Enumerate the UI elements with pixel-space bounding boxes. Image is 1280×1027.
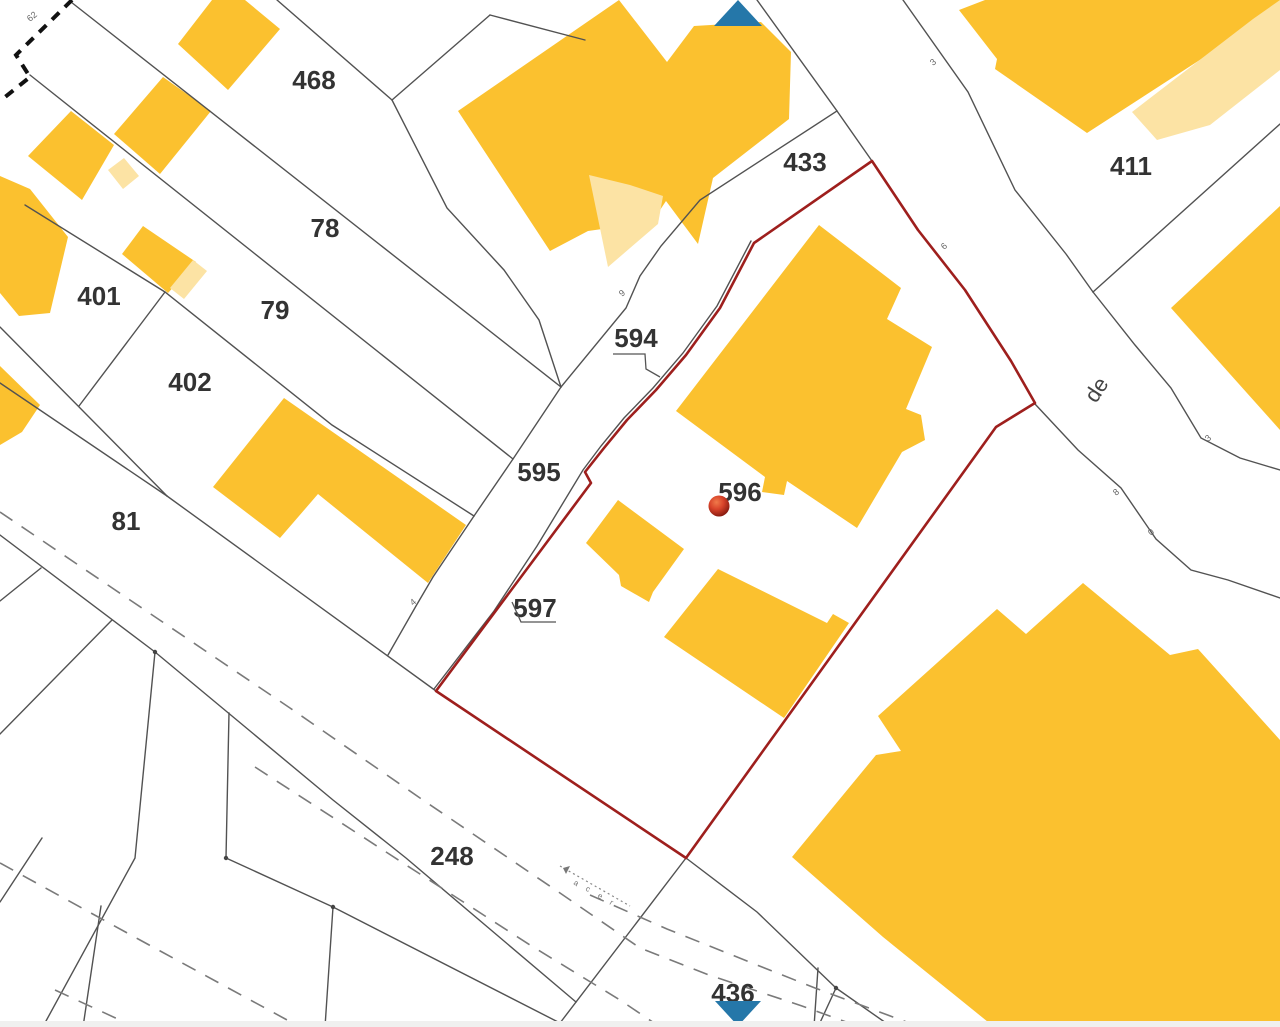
svg-text:78: 78 [311,213,340,243]
svg-text:595: 595 [517,457,560,487]
svg-text:468: 468 [292,65,335,95]
svg-text:248: 248 [430,841,473,871]
svg-text:402: 402 [168,367,211,397]
svg-text:79: 79 [261,295,290,325]
svg-text:594: 594 [614,323,658,353]
svg-text:411: 411 [1110,151,1152,181]
svg-text:433: 433 [783,147,826,177]
svg-text:401: 401 [77,281,120,311]
svg-text:81: 81 [112,506,141,536]
